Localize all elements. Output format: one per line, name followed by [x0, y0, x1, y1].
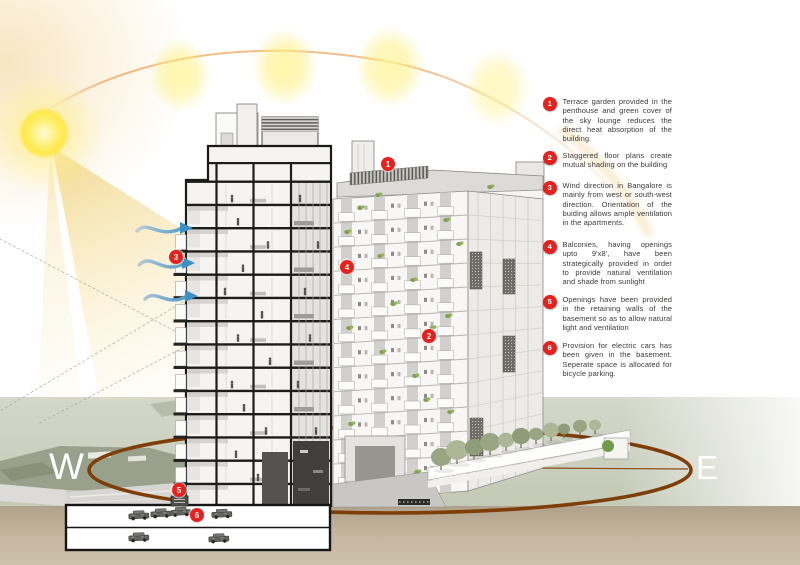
stair-core	[293, 441, 329, 505]
roof-louvers	[262, 117, 318, 132]
annotation-item: 1 Terrace garden provided in the penthou…	[543, 97, 672, 143]
annotation-item: 6 Provision for electric cars has been g…	[543, 341, 672, 378]
left-tower-section	[174, 104, 332, 506]
annotation-item: 3 Wind direction in Bangalore is mainly …	[543, 181, 672, 227]
west-label: W	[49, 448, 84, 485]
annotation-number-badge: 6	[543, 341, 557, 355]
basement	[66, 496, 330, 550]
annotation-text: Openings have been provided in the retai…	[563, 295, 673, 332]
sun-ghost-icon	[464, 49, 530, 127]
basement-vent-grate	[398, 499, 430, 505]
marker-5: 5	[172, 483, 186, 497]
marker-6: 6	[190, 508, 204, 522]
annotation-item: 5 Openings have been provided in the ret…	[543, 295, 672, 332]
marker-3: 3	[169, 250, 183, 264]
annotation-number-badge: 3	[543, 181, 557, 195]
marker-1: 1	[381, 157, 395, 171]
marker-4: 4	[340, 260, 354, 274]
annotation-text: Wind direction in Bangalore is mainly fr…	[563, 181, 673, 227]
annotation-text: Balconies, having openings upto 9'x8', h…	[563, 240, 673, 286]
annotation-number-badge: 1	[543, 97, 557, 111]
east-label: E	[696, 451, 718, 484]
architectural-illustration	[0, 0, 800, 565]
elevator-core	[262, 452, 288, 505]
annotation-text: Provision for electric cars has been giv…	[563, 341, 673, 378]
marker-2: 2	[422, 329, 436, 343]
annotation-number-badge: 4	[543, 240, 557, 254]
annotation-number-badge: 2	[543, 151, 557, 165]
annotation-number-badge: 5	[543, 295, 557, 309]
annotation-item: 4 Balconies, having openings upto 9'x8',…	[543, 240, 672, 286]
annotation-item: 2 Staggered floor plans create mutual sh…	[543, 151, 672, 170]
sun-path-section-diagram: W E 1 2 3 4 5 6 1 Terrace garden provide…	[0, 0, 800, 565]
annotation-text: Terrace garden provided in the penthouse…	[563, 97, 673, 143]
basement-stairs	[171, 496, 188, 506]
sun-ghost-icon	[252, 28, 318, 106]
sun-ghost-icon	[149, 38, 211, 112]
sun-icon	[18, 107, 70, 159]
annotation-text: Staggered floor plans create mutual shad…	[563, 151, 673, 170]
sun-ghost-icon	[355, 26, 425, 108]
